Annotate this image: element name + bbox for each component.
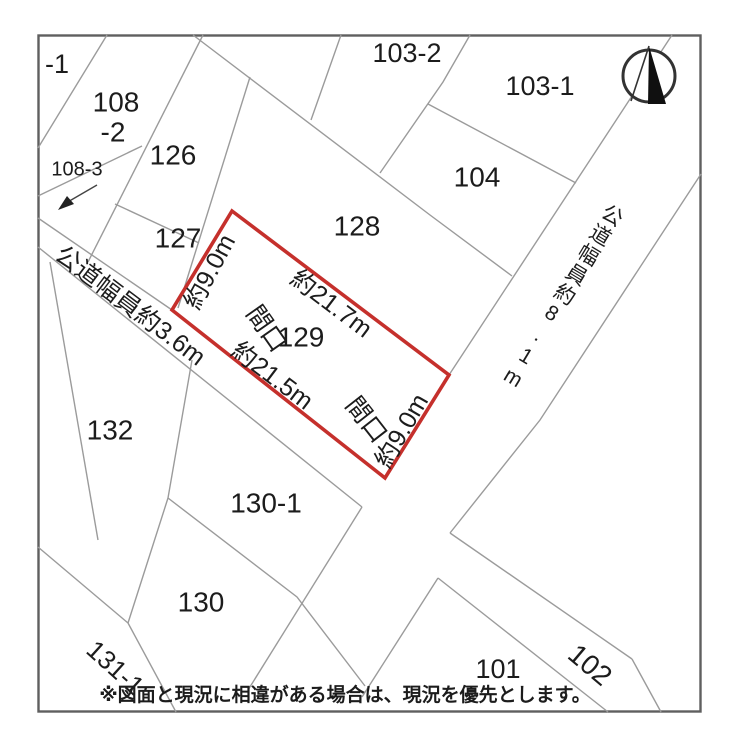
parcel-label-103-2: 103-2 xyxy=(372,39,441,67)
parcel-label-108-3: 108-3 xyxy=(51,160,102,181)
parcel-label-130: 130 xyxy=(178,587,225,616)
road-wide-left-edge-lower xyxy=(362,578,438,697)
leader-arrow-108-3 xyxy=(58,185,97,210)
disclaimer-note: ※図面と現況に相違がある場合は、現況を優先とします。 xyxy=(99,686,591,706)
north-compass-icon xyxy=(623,46,675,104)
parcel-label-128: 128 xyxy=(334,211,381,240)
boundary-103-1-104 xyxy=(428,104,576,183)
parcel-label-103-1: 103-1 xyxy=(505,72,574,100)
map-border xyxy=(39,36,701,712)
boundary-132-131-1 xyxy=(38,547,128,623)
parcel-label-108-2-line1: 108 xyxy=(93,87,140,116)
parcel-boundaries xyxy=(38,35,701,712)
boundary-102-corner xyxy=(632,659,661,712)
boundary-132-right xyxy=(128,360,192,623)
boundary-102-road xyxy=(450,533,632,659)
parcel-label-101: 101 xyxy=(475,655,520,683)
parcel-label-130-1: 130-1 xyxy=(230,488,302,517)
boundary-130-1-road xyxy=(248,507,362,690)
road-wide-right-edge xyxy=(450,174,701,533)
parcel-label-132: 132 xyxy=(87,415,134,444)
cadastral-map: -1 108 -2 108-3 126 127 128 103-2 103-1 … xyxy=(0,0,739,750)
parcel-label-104: 104 xyxy=(454,162,501,191)
boundary-132-left-strip xyxy=(50,262,98,540)
parcel-label-126: 126 xyxy=(150,140,197,169)
boundary-103-2-left xyxy=(311,35,341,120)
parcel-label-108-1: -1 xyxy=(45,50,69,78)
parcel-label-108-2-line2: -2 xyxy=(101,117,126,146)
parcel-label-127: 127 xyxy=(155,223,202,252)
